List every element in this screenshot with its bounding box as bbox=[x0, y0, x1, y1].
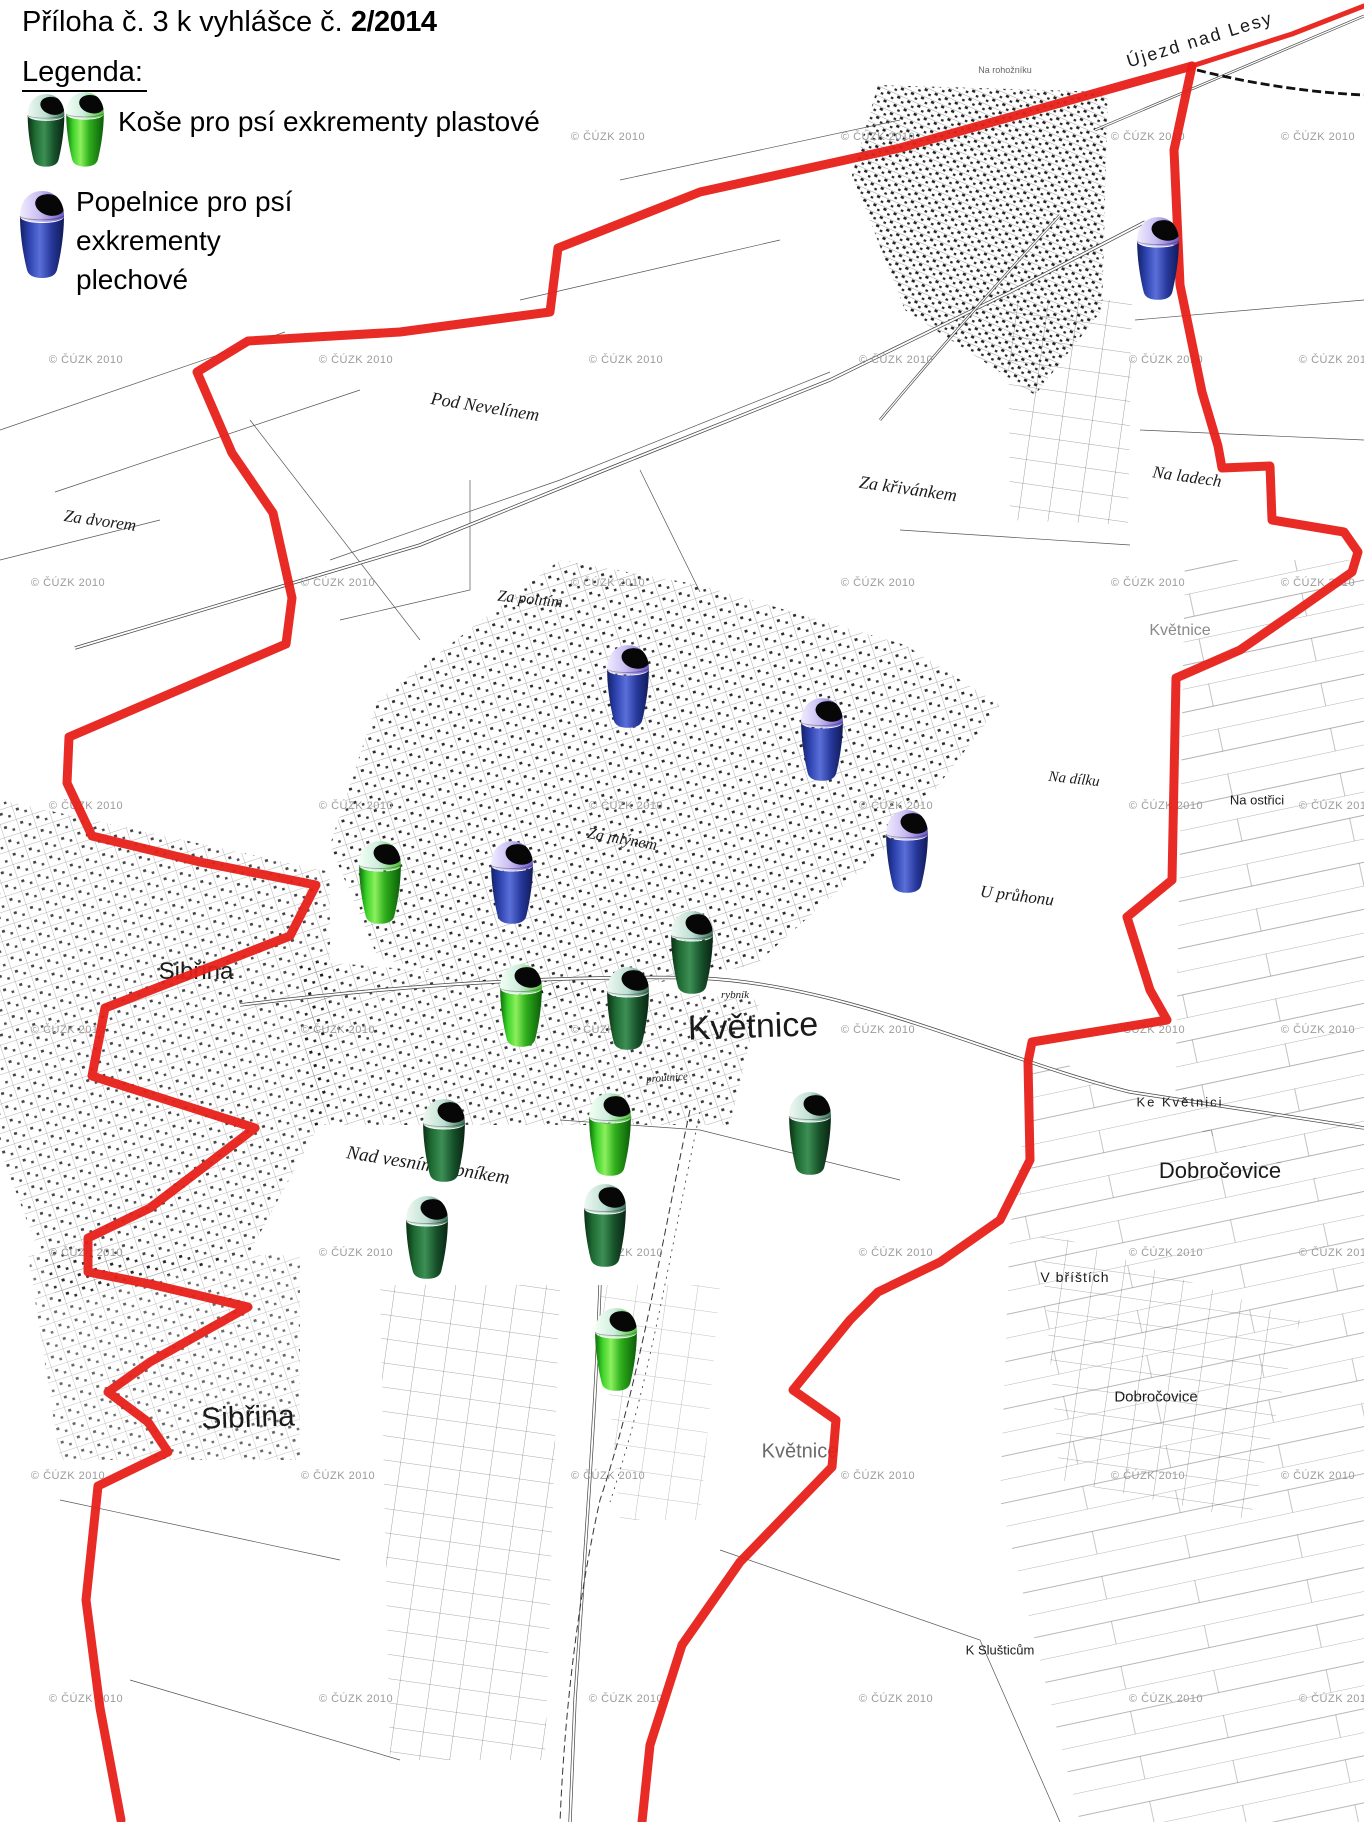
title-prefix: Příloha č. 3 k vyhlášce č. bbox=[22, 6, 343, 38]
legend-heading: Legenda: bbox=[22, 56, 147, 92]
legend-bin-green-icon bbox=[62, 88, 108, 170]
bin-marker-darkgreen bbox=[423, 1099, 468, 1182]
metal-label-line-3: plechové bbox=[76, 260, 292, 299]
bin-marker-darkgreen bbox=[584, 1184, 629, 1267]
metal-label-line-2: exkrementy bbox=[76, 221, 292, 260]
title-number: 2/2014 bbox=[351, 6, 437, 38]
bin-marker-green bbox=[359, 841, 404, 924]
bin-marker-blue bbox=[801, 698, 846, 781]
bin-marker-green bbox=[500, 964, 545, 1047]
map-attachment-page: © ČÚZK 2010© ČÚZK 2010© ČÚZK 2010© ČÚZK … bbox=[0, 0, 1364, 1822]
municipal-boundary-line bbox=[642, 66, 1358, 1822]
page-title: Příloha č. 3 k vyhlášce č. 2/2014 bbox=[22, 6, 437, 39]
bin-marker-darkgreen bbox=[406, 1196, 451, 1279]
legend-item-plastic-label: Koše pro psí exkrementy plastové bbox=[118, 106, 540, 138]
bin-markers-layer bbox=[359, 217, 1182, 1391]
metal-label-line-1: Popelnice pro psí bbox=[76, 182, 292, 221]
bin-marker-blue bbox=[607, 645, 652, 728]
bin-marker-darkgreen bbox=[789, 1092, 834, 1175]
bin-marker-darkgreen bbox=[671, 911, 716, 994]
bin-marker-blue bbox=[491, 841, 536, 924]
legend-bin-blue-icon bbox=[16, 186, 68, 282]
metal-bin-icon bbox=[16, 186, 68, 287]
municipal-boundary-line bbox=[67, 66, 1192, 1820]
plastic-bin-icons bbox=[24, 88, 108, 170]
bin-marker-blue bbox=[886, 810, 931, 893]
municipal-boundary-line bbox=[1192, 6, 1364, 66]
bin-marker-darkgreen bbox=[607, 967, 652, 1050]
bin-marker-green bbox=[595, 1308, 640, 1391]
legend-item-metal-label: Popelnice pro psí exkrementy plechové bbox=[76, 182, 292, 299]
bin-marker-green bbox=[589, 1093, 634, 1176]
bin-marker-blue bbox=[1137, 217, 1182, 300]
